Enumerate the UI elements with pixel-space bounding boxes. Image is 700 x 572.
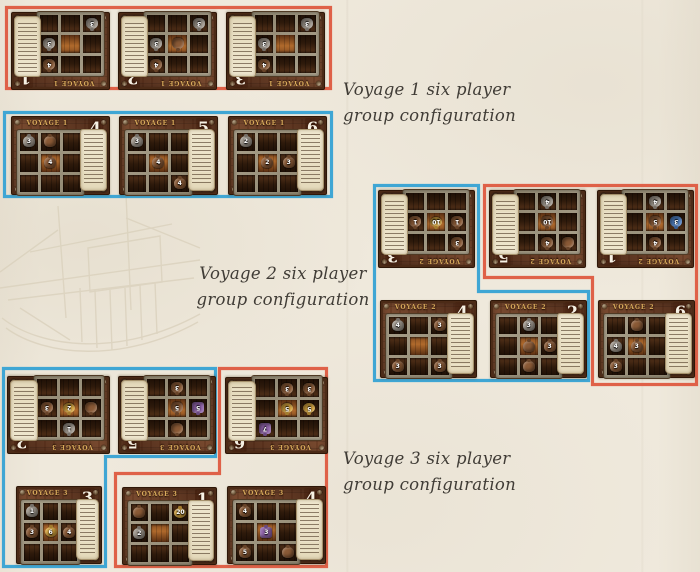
cargo-cell	[499, 358, 517, 376]
board-title: VOYAGE 2	[496, 304, 556, 311]
cargo-cell: 3	[389, 358, 407, 376]
board-title: VOYAGE 2	[409, 257, 469, 264]
cargo-cell: 4	[41, 154, 59, 172]
rules-scroll	[492, 194, 519, 255]
cargo-cell	[83, 35, 101, 53]
goods-icon: 4	[392, 320, 404, 331]
cargo-cell	[41, 175, 59, 193]
cargo-cell	[149, 175, 167, 193]
goods-icon: 1	[451, 216, 463, 227]
cargo-grid: 4104	[514, 190, 580, 255]
cargo-board-voyage3-3: VOYAGE 331364	[16, 486, 102, 564]
cargo-board-voyage2-4: VOYAGE 244333	[380, 300, 477, 378]
cargo-cell: 4	[255, 56, 273, 74]
rules-scroll	[296, 499, 323, 560]
cargo-cell: 2	[60, 399, 79, 417]
board-title: VOYAGE 2	[386, 304, 446, 311]
cargo-cell: 5	[236, 544, 254, 562]
cargo-board-voyage1-6: VOYAGE 16223	[228, 116, 327, 195]
rules-scroll	[447, 313, 474, 374]
cargo-cell	[410, 358, 428, 376]
cargo-cell	[147, 379, 165, 397]
cargo-cell	[168, 15, 186, 33]
cargo-board-voyage3-5: VOYAGE 35553	[118, 376, 216, 454]
cargo-cell: 3	[83, 15, 101, 33]
cargo-cell: 3	[168, 379, 186, 397]
cargo-cell: 4	[646, 193, 664, 211]
cargo-cell: 3	[37, 399, 56, 417]
rules-scroll	[229, 16, 256, 77]
cargo-cell: 7	[255, 420, 274, 437]
goods-icon: 20	[174, 508, 186, 518]
board-title: VOYAGE 3	[258, 443, 322, 450]
goods-icon: 4	[649, 196, 661, 207]
goods-icon: 3	[171, 382, 183, 393]
cargo-cell	[276, 56, 294, 74]
rules-scroll	[297, 129, 324, 191]
goods-icon: 3	[451, 237, 463, 248]
cargo-grid: 433	[37, 12, 104, 77]
cargo-board-voyage2-1: VOYAGE 214354	[597, 190, 694, 268]
cargo-board-voyage1-2: VOYAGE 12433	[118, 12, 217, 90]
cargo-cell	[255, 15, 273, 33]
caption-voyage-2: Voyage 2 six player group configuration	[192, 261, 374, 313]
goods-icon: 4	[610, 341, 622, 352]
cargo-board-voyage1-4: VOYAGE 1434	[11, 116, 110, 195]
cargo-cell	[280, 175, 298, 193]
cargo-cell: 3	[255, 35, 273, 53]
cargo-cell: 3	[431, 358, 449, 376]
cargo-cell	[276, 15, 294, 33]
cargo-cell	[171, 154, 189, 172]
cargo-board-voyage3-4: VOYAGE 34435	[227, 486, 326, 564]
goods-icon: 7	[259, 423, 271, 434]
cargo-cell	[236, 523, 254, 541]
caption-line: group configuration	[192, 287, 374, 313]
goods-icon: 3	[670, 216, 682, 227]
cargo-cell	[559, 234, 577, 252]
cargo-cell	[20, 175, 38, 193]
cargo-cell: 4	[149, 154, 167, 172]
cargo-cell: 4	[389, 317, 407, 335]
goods-icon: 4	[174, 178, 186, 189]
cargo-grid: 433	[144, 12, 211, 77]
cargo-cell	[37, 379, 56, 397]
cargo-grid: 31101	[403, 190, 469, 255]
rules-scroll	[381, 194, 408, 255]
goods-icon: 1	[409, 216, 421, 227]
cargo-cell: 10	[427, 213, 445, 231]
caption-line: group configuration	[343, 472, 518, 498]
cargo-grid: 433	[252, 12, 319, 77]
goods-icon: 5	[281, 403, 293, 413]
cargo-cell	[406, 193, 424, 211]
goods-icon: 4	[541, 196, 553, 207]
cargo-cell: 5	[189, 399, 207, 417]
cargo-cell	[171, 133, 189, 151]
cargo-cell	[131, 545, 149, 563]
cargo-cell: 4	[171, 175, 189, 193]
cargo-cell: 5	[168, 399, 186, 417]
cargo-board-voyage2-2: VOYAGE 2233	[490, 300, 587, 378]
rules-scroll	[557, 313, 584, 374]
cargo-cell: 3	[20, 133, 38, 151]
goods-icon: 4	[541, 237, 553, 248]
cargo-cell	[168, 56, 186, 74]
cargo-cell	[628, 358, 646, 376]
cargo-cell	[410, 337, 428, 355]
cargo-cell	[172, 524, 190, 542]
cargo-cell: 1	[60, 420, 79, 438]
cargo-cell: 2	[258, 154, 276, 172]
cargo-cell	[151, 504, 169, 522]
cargo-grid: 435	[233, 500, 300, 565]
goods-icon: 4	[150, 59, 162, 70]
cargo-board-voyage3-1: VOYAGE 31202	[122, 487, 217, 565]
goods-icon: 10	[430, 217, 442, 227]
cargo-cell: 4	[61, 523, 77, 541]
goods-icon: 3	[260, 527, 272, 538]
goods-icon	[631, 320, 643, 331]
goods-icon: 6	[45, 527, 57, 537]
goods-icon	[523, 361, 535, 372]
cargo-board-voyage1-1: VOYAGE 11433	[11, 12, 110, 90]
cargo-cell: 4	[236, 503, 254, 521]
cargo-cell	[431, 337, 449, 355]
cargo-cell	[147, 15, 165, 33]
board-title: VOYAGE 3	[150, 443, 210, 450]
cargo-cell	[168, 420, 186, 438]
cargo-cell: 4	[607, 337, 625, 355]
goods-icon	[523, 341, 535, 352]
cargo-cell	[61, 56, 79, 74]
caption-voyage-1: Voyage 1 six player group configuration	[343, 77, 518, 129]
goods-icon: 3	[41, 402, 53, 413]
rules-scroll	[10, 380, 38, 441]
cargo-cell	[63, 154, 81, 172]
cargo-cell	[258, 175, 276, 193]
cargo-grid: 1364	[21, 500, 80, 565]
cargo-cell	[82, 399, 101, 417]
goods-icon: 3	[523, 320, 535, 331]
goods-icon: 3	[150, 38, 162, 49]
cargo-grid: 4354	[622, 190, 688, 255]
cargo-cell	[628, 317, 646, 335]
cargo-cell	[279, 544, 297, 562]
cargo-cell	[280, 133, 298, 151]
cargo-grid: 75533	[252, 377, 322, 441]
cargo-cell: 1	[448, 213, 466, 231]
goods-icon	[44, 136, 56, 147]
goods-icon: 4	[152, 157, 164, 168]
cargo-cell: 5	[646, 213, 664, 231]
cargo-cell: 4	[147, 56, 165, 74]
board-title: VOYAGE 1	[43, 79, 104, 86]
cargo-cell	[43, 503, 59, 521]
cargo-board-voyage2-6: VOYAGE 26433	[598, 300, 695, 378]
cargo-grid: 202	[128, 501, 193, 566]
goods-icon: 3	[434, 320, 446, 331]
goods-icon: 3	[544, 341, 556, 352]
cargo-cell	[147, 399, 165, 417]
cargo-grid: 4333	[386, 314, 452, 379]
cargo-cell	[61, 544, 77, 562]
goods-icon: 3	[43, 38, 55, 49]
goods-icon: 3	[610, 361, 622, 372]
goods-icon: 4	[649, 237, 661, 248]
cargo-grid: 33	[496, 314, 562, 379]
cargo-cell	[43, 544, 59, 562]
goods-icon: 3	[23, 136, 35, 147]
goods-icon: 5	[192, 402, 204, 413]
cargo-cell: 3	[607, 358, 625, 376]
caption-voyage-3: Voyage 3 six player group configuration	[343, 446, 518, 498]
cargo-cell	[625, 213, 643, 231]
cargo-cell: 5	[300, 400, 319, 417]
cargo-cell	[389, 337, 407, 355]
cargo-cell	[559, 213, 577, 231]
cargo-cell	[237, 175, 255, 193]
board-title: VOYAGE 2	[604, 304, 664, 311]
goods-icon: 1	[26, 506, 38, 517]
cargo-board-voyage3-6: VOYAGE 3675533	[225, 377, 328, 454]
cargo-cell	[520, 337, 538, 355]
cargo-cell: 3	[520, 317, 538, 335]
cargo-cell	[541, 358, 559, 376]
cargo-cell: 3	[431, 317, 449, 335]
caption-line: group configuration	[343, 103, 518, 129]
cargo-cell: 3	[448, 234, 466, 252]
board-title: VOYAGE 3	[40, 443, 104, 450]
cargo-cell	[82, 420, 101, 438]
cargo-cell	[131, 504, 149, 522]
cargo-board-voyage1-5: VOYAGE 15344	[119, 116, 218, 195]
goods-icon	[171, 423, 183, 434]
rules-scroll	[188, 129, 215, 191]
cargo-cell: 3	[128, 133, 146, 151]
cargo-cell: 3	[278, 380, 297, 397]
cargo-cell	[667, 193, 685, 211]
cargo-board-voyage3-2: VOYAGE 32123	[7, 376, 110, 454]
cargo-cell: 1	[24, 503, 40, 521]
goods-icon: 2	[261, 157, 273, 168]
cargo-cell	[517, 193, 535, 211]
cargo-board-voyage2-5: VOYAGE 254104	[489, 190, 586, 268]
board-title: VOYAGE 2	[520, 257, 580, 264]
cargo-cell	[61, 35, 79, 53]
cargo-cell: 3	[257, 523, 275, 541]
board-title: VOYAGE 1	[17, 120, 78, 127]
cargo-cell: 3	[40, 35, 58, 53]
cargo-cell	[128, 175, 146, 193]
goods-icon: 3	[258, 38, 270, 49]
board-title: VOYAGE 2	[628, 257, 688, 264]
goods-icon: 3	[631, 341, 643, 352]
cargo-cell	[151, 545, 169, 563]
caption-line: Voyage 1 six player	[343, 77, 518, 103]
goods-icon: 4	[44, 157, 56, 168]
goods-icon: 3	[392, 361, 404, 372]
cargo-cell	[541, 317, 559, 335]
cargo-cell: 2	[131, 524, 149, 542]
cargo-cell	[190, 56, 208, 74]
cargo-cell	[649, 358, 667, 376]
rules-scroll	[121, 380, 148, 441]
cargo-cell	[279, 523, 297, 541]
cargo-cell: 4	[646, 234, 664, 252]
cargo-cell: 20	[172, 504, 190, 522]
cargo-cell	[649, 317, 667, 335]
cargo-cell: 4	[40, 56, 58, 74]
rulebook-page: VOYAGE 11433VOYAGE 12433VOYAGE 13433VOYA…	[0, 0, 700, 572]
cargo-cell	[607, 317, 625, 335]
goods-icon	[133, 507, 145, 518]
cargo-cell	[237, 154, 255, 172]
board-title: VOYAGE 3	[21, 490, 74, 497]
cargo-cell	[499, 317, 517, 335]
cargo-cell	[128, 154, 146, 172]
board-title: VOYAGE 1	[125, 120, 186, 127]
goods-icon	[172, 38, 184, 49]
cargo-cell: 4	[538, 234, 556, 252]
cargo-cell	[172, 545, 190, 563]
goods-icon: 5	[239, 547, 251, 558]
goods-icon: 4	[63, 527, 75, 538]
cargo-cell	[258, 133, 276, 151]
goods-icon: 3	[26, 527, 38, 538]
cargo-cell	[257, 503, 275, 521]
rules-scroll	[121, 16, 148, 77]
cargo-cell	[24, 544, 40, 562]
rules-scroll	[665, 313, 692, 374]
cargo-cell	[63, 133, 81, 151]
goods-icon: 10	[541, 216, 553, 227]
goods-icon: 3	[131, 136, 143, 147]
cargo-cell	[649, 337, 667, 355]
board-title: VOYAGE 1	[258, 79, 319, 86]
cargo-cell	[255, 400, 274, 417]
cargo-cell: 3	[667, 213, 685, 231]
cargo-cell	[667, 234, 685, 252]
cargo-cell	[279, 503, 297, 521]
cargo-cell	[520, 358, 538, 376]
cargo-cell: 3	[190, 15, 208, 33]
cargo-cell	[406, 234, 424, 252]
cargo-cell	[37, 420, 56, 438]
cargo-board-voyage1-3: VOYAGE 13433	[226, 12, 325, 90]
cargo-cell: 10	[538, 213, 556, 231]
goods-icon: 4	[43, 59, 55, 70]
cargo-cell	[517, 234, 535, 252]
cargo-cell: 2	[237, 133, 255, 151]
cargo-cell	[189, 420, 207, 438]
cargo-cell	[448, 193, 466, 211]
cargo-cell	[300, 420, 319, 437]
cargo-cell	[20, 154, 38, 172]
caption-line: Voyage 2 six player	[192, 261, 374, 287]
cargo-cell: 3	[24, 523, 40, 541]
cargo-cell: 4	[538, 193, 556, 211]
cargo-cell	[41, 133, 59, 151]
cargo-cell	[499, 337, 517, 355]
goods-icon: 3	[434, 361, 446, 372]
cargo-cell: 3	[300, 380, 319, 397]
cargo-cell	[60, 379, 79, 397]
cargo-cell: 3	[628, 337, 646, 355]
rules-scroll	[80, 129, 107, 191]
cargo-grid: 433	[604, 314, 670, 379]
goods-icon	[85, 402, 97, 413]
cargo-cell: 3	[280, 154, 298, 172]
cargo-cell	[168, 35, 186, 53]
cargo-cell	[147, 420, 165, 438]
cargo-cell	[61, 503, 77, 521]
cargo-cell	[625, 234, 643, 252]
cargo-cell: 6	[43, 523, 59, 541]
rules-scroll	[76, 499, 100, 560]
cargo-cell	[189, 379, 207, 397]
cargo-cell	[298, 56, 316, 74]
rules-scroll	[228, 381, 256, 441]
cargo-cell: 3	[298, 15, 316, 33]
cargo-cell: 3	[541, 337, 559, 355]
rules-scroll	[14, 16, 41, 77]
rules-scroll	[600, 194, 627, 255]
goods-icon: 2	[63, 403, 75, 413]
cargo-cell	[82, 379, 101, 397]
goods-icon: 5	[303, 403, 315, 413]
goods-icon: 3	[301, 18, 313, 29]
goods-icon: 1	[63, 423, 75, 434]
cargo-grid: 34	[17, 130, 84, 195]
goods-icon: 5	[171, 402, 183, 413]
cargo-cell	[298, 35, 316, 53]
cargo-cell: 5	[278, 400, 297, 417]
cargo-cell	[625, 193, 643, 211]
cargo-cell	[278, 420, 297, 437]
cargo-cell	[257, 544, 275, 562]
board-title: VOYAGE 1	[150, 79, 211, 86]
cargo-cell	[559, 193, 577, 211]
cargo-board-voyage2-3: VOYAGE 2331101	[378, 190, 475, 268]
goods-icon: 3	[193, 18, 205, 29]
goods-icon: 4	[239, 506, 251, 517]
cargo-grid: 123	[34, 376, 104, 441]
rules-scroll	[188, 500, 214, 561]
board-title: VOYAGE 3	[233, 490, 294, 497]
cargo-cell	[151, 524, 169, 542]
cargo-cell	[427, 193, 445, 211]
cargo-cell	[255, 380, 274, 397]
cargo-cell	[276, 35, 294, 53]
goods-icon: 3	[283, 157, 295, 168]
cargo-cell	[61, 15, 79, 33]
cargo-cell	[190, 35, 208, 53]
goods-icon: 2	[240, 136, 252, 147]
cargo-cell	[63, 175, 81, 193]
goods-icon: 2	[133, 528, 145, 539]
board-title: VOYAGE 1	[234, 120, 295, 127]
goods-icon	[282, 547, 294, 558]
cargo-cell	[83, 56, 101, 74]
cargo-grid: 223	[234, 130, 301, 195]
board-title: VOYAGE 3	[128, 491, 187, 498]
goods-icon	[562, 237, 574, 248]
cargo-cell	[427, 234, 445, 252]
goods-icon: 3	[281, 383, 293, 394]
goods-icon: 3	[86, 18, 98, 29]
cargo-grid: 344	[125, 130, 192, 195]
